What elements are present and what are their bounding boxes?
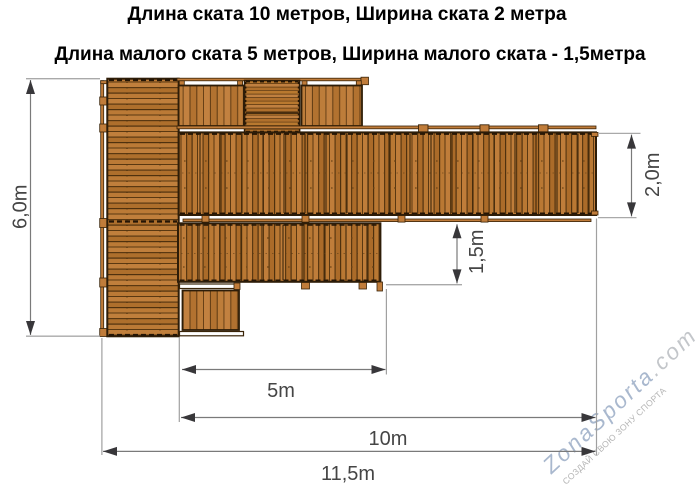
- svg-text:Длина ската 10 метров, Ширина: Длина ската 10 метров, Ширина ската 2 ме…: [127, 4, 566, 25]
- svg-text:1,5m: 1,5m: [466, 230, 488, 274]
- svg-text:6,0m: 6,0m: [10, 185, 32, 229]
- svg-text:5m: 5m: [267, 380, 295, 402]
- svg-text:Длина малого ската 5 метров, Ш: Длина малого ската 5 метров, Ширина мало…: [54, 44, 646, 65]
- svg-text:10m: 10m: [369, 428, 408, 450]
- svg-text:2,0m: 2,0m: [642, 153, 664, 197]
- svg-text:11,5m: 11,5m: [321, 463, 375, 485]
